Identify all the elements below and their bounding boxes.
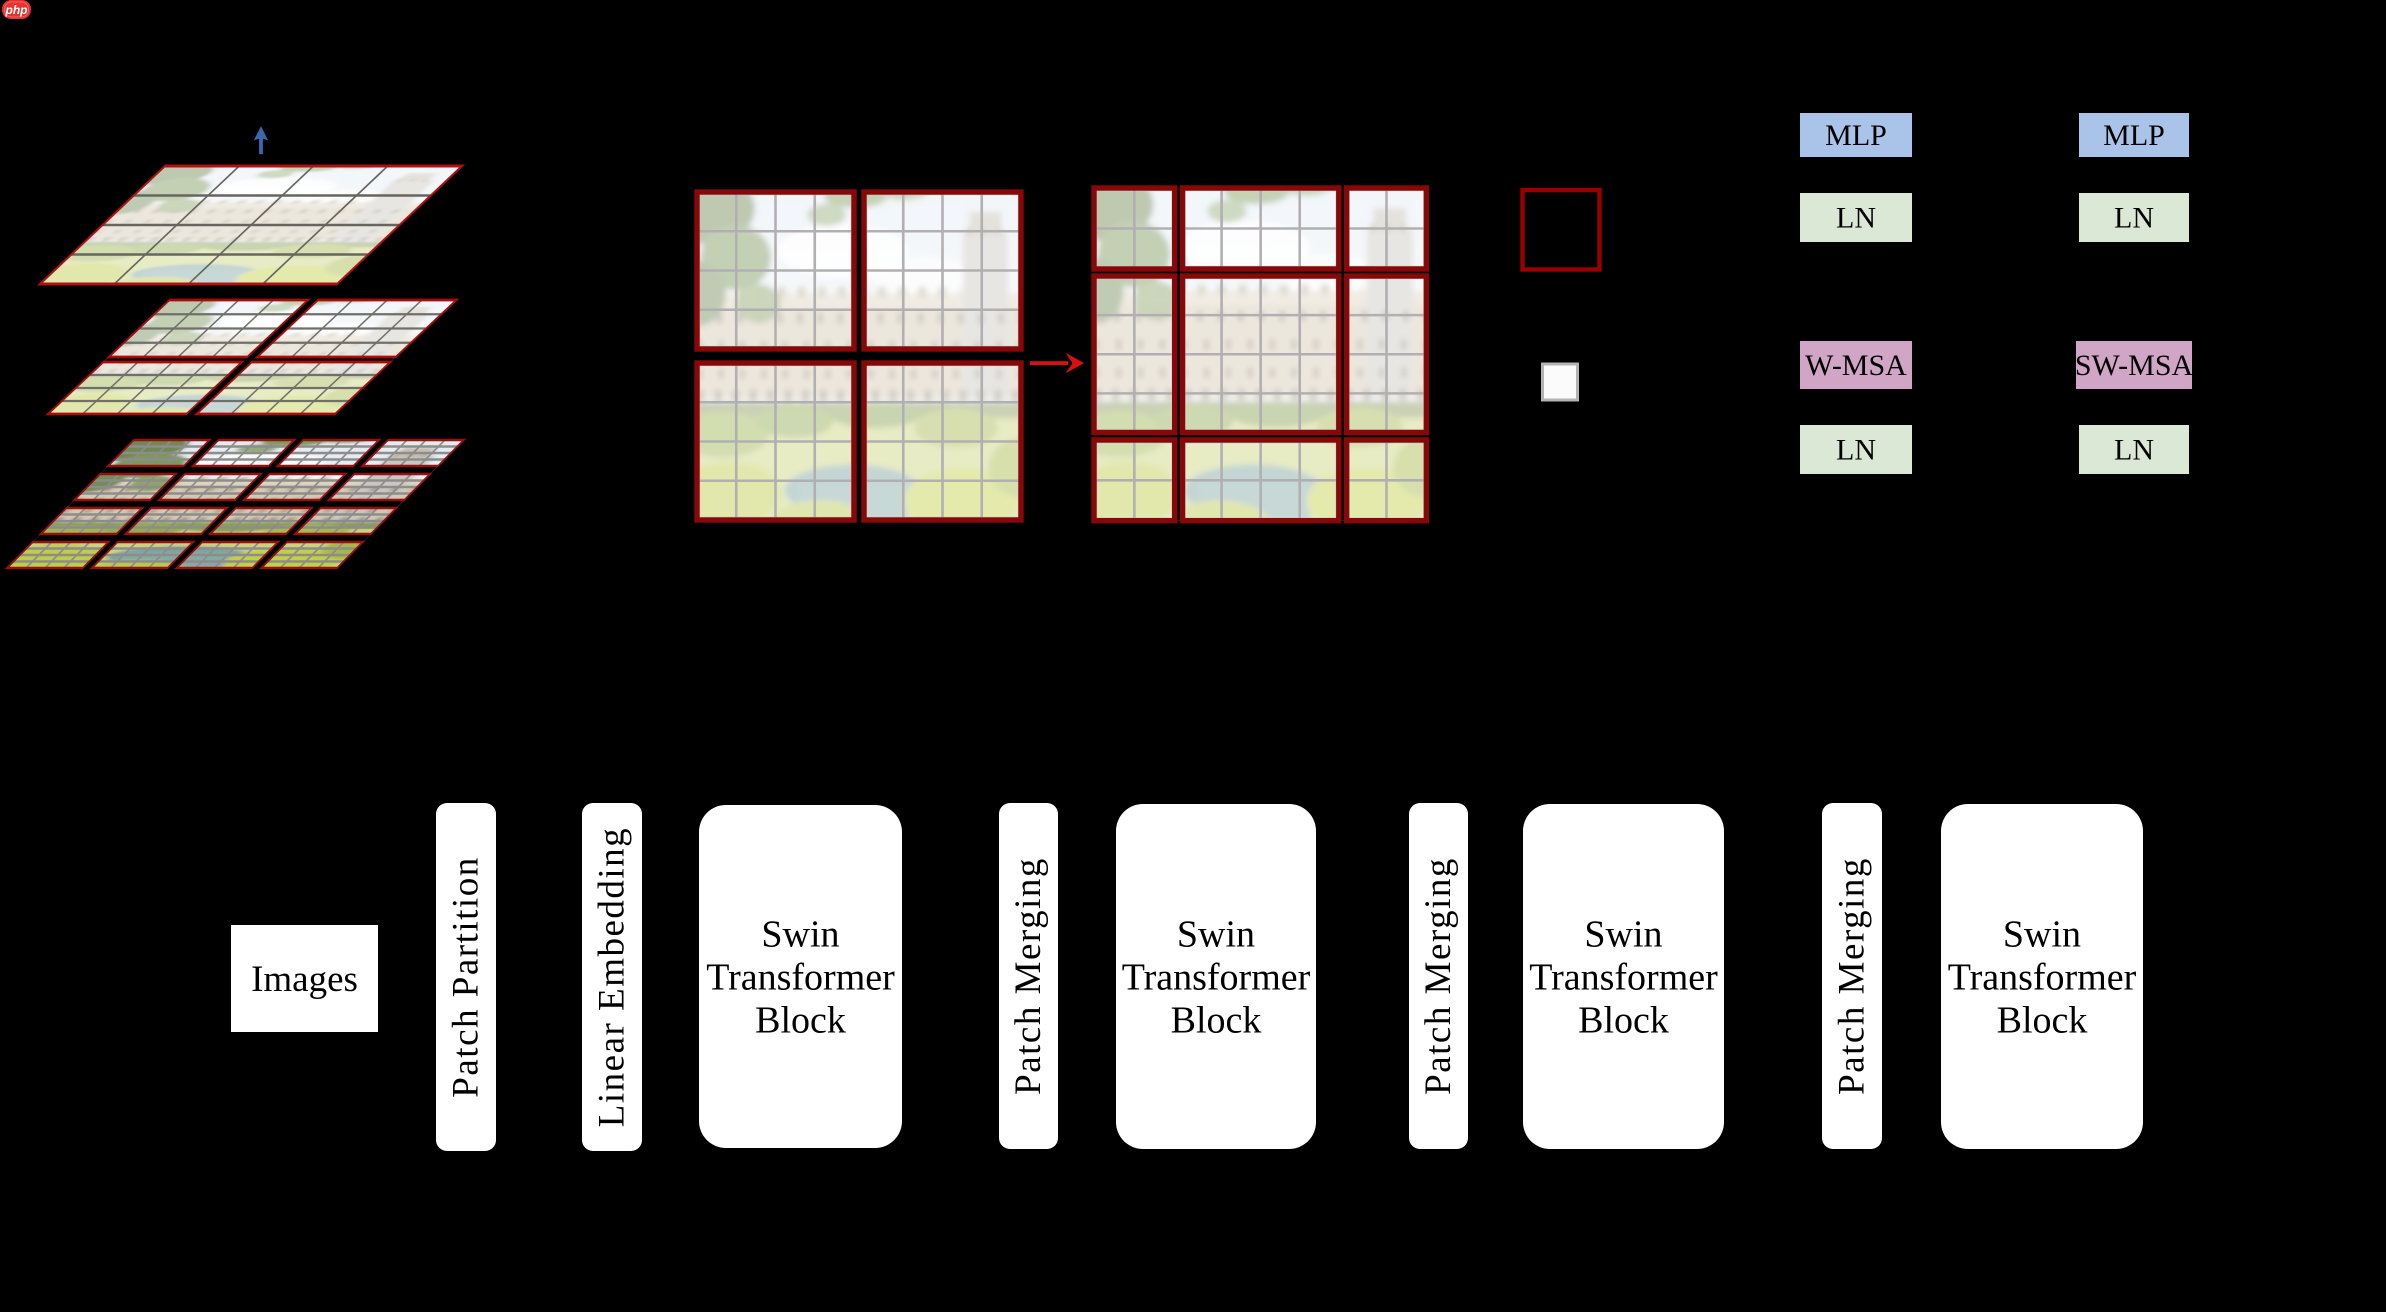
svg-text:Swin: Swin xyxy=(1584,914,1662,956)
svg-text:Linear Embedding: Linear Embedding xyxy=(592,827,633,1127)
svg-text:Block: Block xyxy=(1578,1000,1669,1042)
svg-text:Swin: Swin xyxy=(761,914,839,956)
svg-text:LN: LN xyxy=(2114,202,2154,235)
svg-text:Patch Merging: Patch Merging xyxy=(1832,857,1873,1095)
svg-text:Patch Merging: Patch Merging xyxy=(1008,857,1049,1095)
svg-text:LN: LN xyxy=(1836,434,1876,467)
svg-text:Swin: Swin xyxy=(1177,914,1255,956)
svg-text:Transformer: Transformer xyxy=(706,957,895,999)
svg-text:Transformer: Transformer xyxy=(1948,957,2137,999)
svg-text:Block: Block xyxy=(1171,1000,1262,1042)
svg-text:LN: LN xyxy=(1836,202,1876,235)
svg-text:Patch Merging: Patch Merging xyxy=(1418,857,1459,1095)
svg-text:Patch Partition: Patch Partition xyxy=(446,856,487,1097)
svg-text:MLP: MLP xyxy=(1825,119,1887,152)
svg-text:LN: LN xyxy=(2114,434,2154,467)
svg-text:W-MSA: W-MSA xyxy=(1805,349,1907,382)
svg-text:SW-MSA: SW-MSA xyxy=(2075,349,2194,382)
svg-text:php: php xyxy=(5,3,28,17)
svg-text:Transformer: Transformer xyxy=(1122,957,1311,999)
svg-text:Swin: Swin xyxy=(2003,914,2081,956)
svg-text:MLP: MLP xyxy=(2103,119,2165,152)
svg-text:Images: Images xyxy=(251,959,358,1000)
svg-text:Transformer: Transformer xyxy=(1529,957,1718,999)
svg-text:Block: Block xyxy=(755,1000,846,1042)
svg-text:Block: Block xyxy=(1997,1000,2088,1042)
